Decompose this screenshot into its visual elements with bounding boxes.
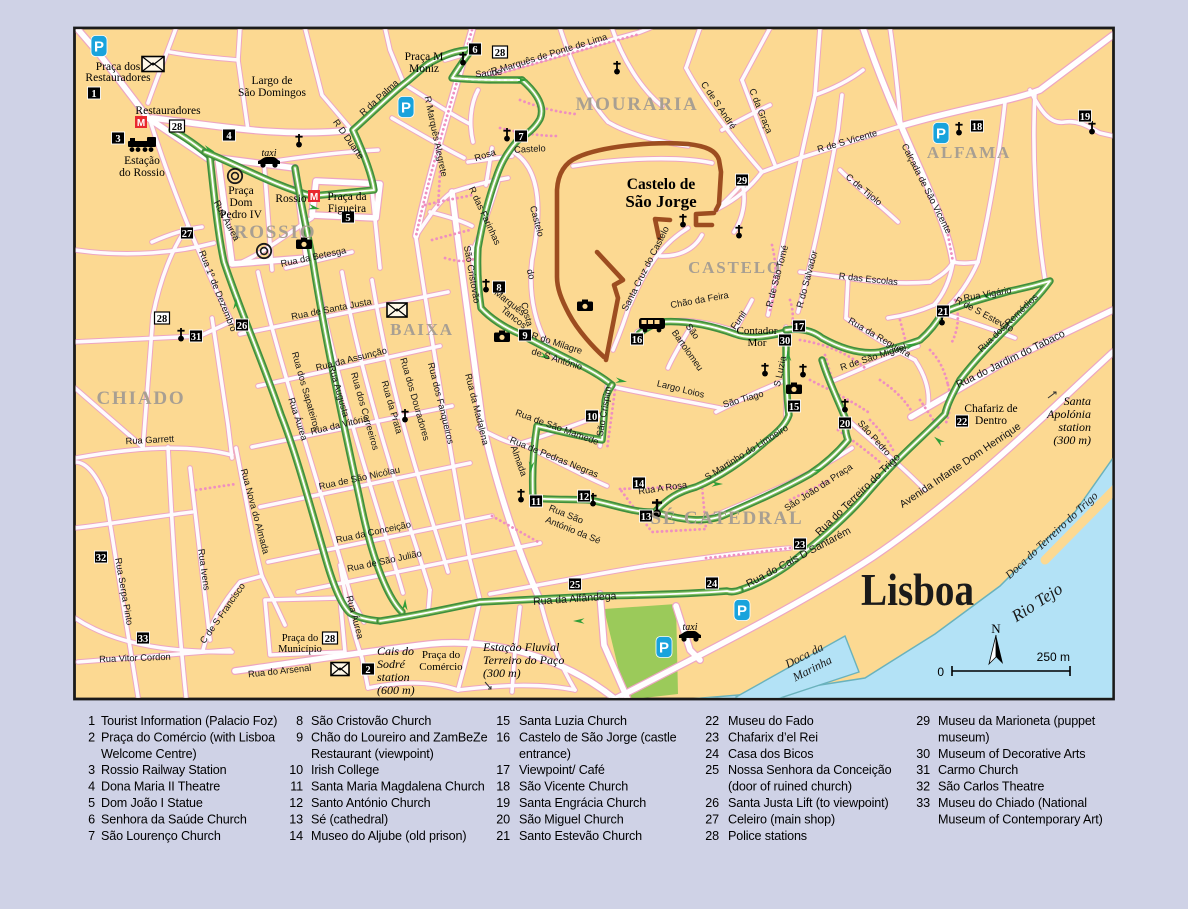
svg-text:4: 4: [226, 131, 232, 142]
svg-text:1: 1: [91, 89, 96, 100]
svg-text:18: 18: [972, 122, 983, 133]
svg-text:Castelo: Castelo: [514, 143, 546, 155]
svg-text:Praça M: Praça M: [405, 51, 444, 63]
svg-text:CHIADO: CHIADO: [97, 388, 186, 409]
svg-text:Restaurant (viewpoint): Restaurant (viewpoint): [311, 747, 434, 761]
svg-text:Praça da: Praça da: [327, 191, 366, 203]
svg-text:Celeiro (main shop): Celeiro (main shop): [728, 812, 835, 826]
svg-text:Sé (cathedral): Sé (cathedral): [311, 812, 388, 826]
svg-text:18: 18: [496, 780, 510, 794]
svg-text:Irish College: Irish College: [311, 763, 379, 777]
svg-text:Pedro IV: Pedro IV: [220, 209, 263, 221]
svg-text:taxi: taxi: [262, 148, 277, 159]
svg-text:Praça do Comércio (with Lisboa: Praça do Comércio (with Lisboa: [101, 730, 275, 744]
svg-text:P: P: [659, 640, 669, 657]
svg-text:6: 6: [472, 45, 477, 56]
svg-text:ALFAMA: ALFAMA: [927, 143, 1011, 162]
svg-text:M: M: [310, 192, 318, 203]
svg-text:MOURARIA: MOURARIA: [575, 94, 698, 115]
svg-text:station: station: [1058, 420, 1091, 434]
svg-text:Museum of Contemporary Art): Museum of Contemporary Art): [938, 812, 1103, 826]
svg-text:Praça do: Praça do: [422, 649, 461, 661]
svg-text:station: station: [377, 670, 410, 684]
svg-text:do Rossio: do Rossio: [119, 167, 165, 179]
svg-text:Estação: Estação: [124, 155, 160, 167]
svg-text:19: 19: [1080, 112, 1091, 123]
svg-text:25: 25: [705, 763, 719, 777]
svg-text:5: 5: [88, 796, 95, 810]
svg-text:São Vicente Church: São Vicente Church: [519, 780, 628, 794]
svg-text:M: M: [137, 118, 145, 129]
svg-text:Museu da Marioneta (puppet: Museu da Marioneta (puppet: [938, 714, 1096, 728]
svg-text:Sodré: Sodré: [377, 657, 406, 671]
svg-text:30: 30: [916, 747, 930, 761]
svg-text:Casa dos Bicos: Casa dos Bicos: [728, 747, 813, 761]
svg-text:24: 24: [707, 579, 718, 590]
svg-text:Comércio: Comércio: [419, 661, 463, 673]
svg-text:Dentro: Dentro: [975, 415, 1007, 427]
svg-text:P: P: [401, 100, 411, 117]
svg-text:15: 15: [789, 402, 800, 413]
svg-text:30: 30: [780, 336, 791, 347]
svg-text:Castelo de São Jorge (castle: Castelo de São Jorge (castle: [519, 730, 677, 744]
svg-text:ROSSIO: ROSSIO: [234, 222, 317, 243]
svg-text:Museu do Fado: Museu do Fado: [728, 714, 814, 728]
svg-text:Senhora da Saúde Church: Senhora da Saúde Church: [101, 812, 247, 826]
svg-text:17: 17: [794, 322, 805, 333]
svg-text:12: 12: [289, 796, 303, 810]
svg-text:19: 19: [496, 796, 510, 810]
svg-text:21: 21: [496, 829, 510, 843]
svg-text:Terreiro do Paço: Terreiro do Paço: [483, 653, 564, 667]
svg-text:Rossio: Rossio: [275, 193, 307, 205]
svg-text:25: 25: [570, 580, 581, 591]
svg-text:São Cristovão Church: São Cristovão Church: [311, 714, 431, 728]
svg-text:4: 4: [88, 780, 95, 794]
svg-text:Chão do Loureiro and ZamBeZe: Chão do Loureiro and ZamBeZe: [311, 730, 488, 744]
svg-text:São Carlos Theatre: São Carlos Theatre: [938, 780, 1044, 794]
svg-text:23: 23: [705, 730, 719, 744]
svg-text:Museum of Decorative Arts: Museum of Decorative Arts: [938, 747, 1085, 761]
svg-text:Apolónia: Apolónia: [1046, 407, 1091, 421]
svg-text:entrance): entrance): [519, 747, 571, 761]
svg-text:Praça do: Praça do: [282, 633, 318, 644]
svg-text:N: N: [991, 621, 1001, 636]
svg-text:Chafariz de: Chafariz de: [964, 403, 1017, 415]
svg-text:Restauradores: Restauradores: [85, 72, 151, 84]
svg-text:P: P: [94, 39, 104, 56]
svg-text:28: 28: [495, 48, 506, 59]
svg-text:21: 21: [938, 307, 949, 318]
svg-text:32: 32: [96, 553, 107, 564]
svg-text:33: 33: [916, 796, 930, 810]
svg-text:Mor: Mor: [748, 337, 767, 349]
svg-text:16: 16: [496, 730, 510, 744]
svg-text:3: 3: [115, 134, 120, 145]
svg-text:31: 31: [191, 332, 202, 343]
svg-text:22: 22: [705, 714, 719, 728]
svg-text:(300 m): (300 m): [1053, 433, 1091, 447]
svg-text:14: 14: [289, 829, 303, 843]
svg-text:2: 2: [88, 730, 95, 744]
svg-text:Santa Luzia Church: Santa Luzia Church: [519, 714, 627, 728]
svg-text:Museo do Aljube (old prison): Museo do Aljube (old prison): [311, 829, 466, 843]
svg-text:Carmo Church: Carmo Church: [938, 763, 1018, 777]
svg-text:CASTELO: CASTELO: [688, 258, 782, 277]
svg-text:9: 9: [522, 331, 527, 342]
svg-text:Santo Estevão Church: Santo Estevão Church: [519, 829, 642, 843]
svg-text:Contador: Contador: [737, 325, 778, 337]
svg-text:28: 28: [705, 829, 719, 843]
svg-text:Dona Maria II Theatre: Dona Maria II Theatre: [101, 780, 220, 794]
svg-text:1: 1: [88, 714, 95, 728]
svg-text:Moniz: Moniz: [409, 63, 439, 75]
svg-text:Praça: Praça: [228, 185, 254, 197]
svg-text:Museu do Chiado (National: Museu do Chiado (National: [938, 796, 1087, 810]
svg-text:15: 15: [496, 714, 510, 728]
svg-text:Tourist Information (Palacio F: Tourist Information (Palacio Foz): [101, 714, 277, 728]
svg-text:Santa Maria Magdalena Church: Santa Maria Magdalena Church: [311, 780, 485, 794]
svg-text:26: 26: [705, 796, 719, 810]
svg-text:São Miguel Church: São Miguel Church: [519, 812, 624, 826]
svg-text:Dom João I Statue: Dom João I Statue: [101, 796, 203, 810]
svg-text:10: 10: [289, 763, 303, 777]
svg-text:28: 28: [172, 122, 183, 133]
svg-text:Cais do: Cais do: [377, 644, 414, 658]
svg-text:São Domingos: São Domingos: [238, 87, 307, 99]
svg-text:taxi: taxi: [683, 622, 698, 633]
svg-text:Santa Justa Lift (to viewpoint: Santa Justa Lift (to viewpoint): [728, 796, 889, 810]
svg-text:17: 17: [496, 763, 510, 777]
svg-text:7: 7: [88, 829, 95, 843]
svg-text:Chafarix d’el Rei: Chafarix d’el Rei: [728, 730, 818, 744]
svg-text:Largo de: Largo de: [252, 75, 293, 87]
svg-text:10: 10: [587, 412, 598, 423]
svg-text:12: 12: [579, 492, 590, 503]
svg-text:Nossa Senhora da Conceição: Nossa Senhora da Conceição: [728, 763, 892, 777]
svg-text:São Jorge: São Jorge: [625, 192, 697, 211]
svg-text:museum): museum): [938, 730, 989, 744]
svg-text:Police stations: Police stations: [728, 829, 807, 843]
svg-text:9: 9: [296, 730, 303, 744]
svg-text:BAIXA: BAIXA: [390, 320, 454, 339]
svg-text:11: 11: [531, 497, 541, 508]
svg-text:Restauradores: Restauradores: [135, 105, 201, 117]
svg-text:Santa Engrácia Church: Santa Engrácia Church: [519, 796, 646, 810]
svg-text:Estação Fluvial: Estação Fluvial: [482, 640, 560, 654]
svg-text:13: 13: [289, 812, 303, 826]
svg-text:Rossio Railway Station: Rossio Railway Station: [101, 763, 227, 777]
svg-text:Welcome Centre): Welcome Centre): [101, 747, 197, 761]
svg-text:6: 6: [88, 812, 95, 826]
svg-text:11: 11: [290, 780, 303, 794]
svg-text:33: 33: [138, 634, 149, 645]
svg-text:20: 20: [496, 812, 510, 826]
svg-text:2: 2: [365, 665, 370, 676]
svg-text:7: 7: [518, 132, 523, 143]
svg-text:0: 0: [937, 665, 944, 679]
svg-text:Dom: Dom: [230, 197, 253, 209]
svg-text:16: 16: [632, 335, 643, 346]
svg-text:SÉ CATEDRAL: SÉ CATEDRAL: [650, 507, 803, 529]
svg-text:27: 27: [705, 812, 719, 826]
svg-text:Castelo de: Castelo de: [627, 176, 696, 193]
svg-text:(door of ruined church): (door of ruined church): [728, 780, 852, 794]
svg-text:(600 m): (600 m): [377, 683, 415, 697]
svg-text:8: 8: [296, 714, 303, 728]
svg-text:Viewpoint/ Café: Viewpoint/ Café: [519, 763, 605, 777]
svg-text:24: 24: [705, 747, 719, 761]
svg-text:Santo António Church: Santo António Church: [311, 796, 431, 810]
svg-text:20: 20: [840, 419, 851, 430]
svg-text:Lisboa: Lisboa: [861, 564, 974, 615]
svg-text:Santa: Santa: [1064, 394, 1091, 408]
svg-text:28: 28: [157, 314, 168, 325]
svg-text:29: 29: [737, 176, 748, 187]
svg-text:São Lourenço Church: São Lourenço Church: [101, 829, 221, 843]
svg-text:29: 29: [916, 714, 930, 728]
svg-text:P: P: [936, 126, 946, 143]
svg-text:27: 27: [182, 229, 193, 240]
svg-text:(300 m): (300 m): [483, 666, 521, 680]
svg-text:32: 32: [916, 780, 930, 794]
svg-text:Município: Município: [278, 644, 322, 655]
svg-text:28: 28: [325, 634, 336, 645]
svg-text:Figueira: Figueira: [328, 203, 366, 215]
svg-text:22: 22: [957, 417, 968, 428]
svg-text:31: 31: [916, 763, 930, 777]
svg-text:250 m: 250 m: [1037, 650, 1070, 664]
svg-text:P: P: [737, 603, 747, 620]
svg-text:3: 3: [88, 763, 95, 777]
